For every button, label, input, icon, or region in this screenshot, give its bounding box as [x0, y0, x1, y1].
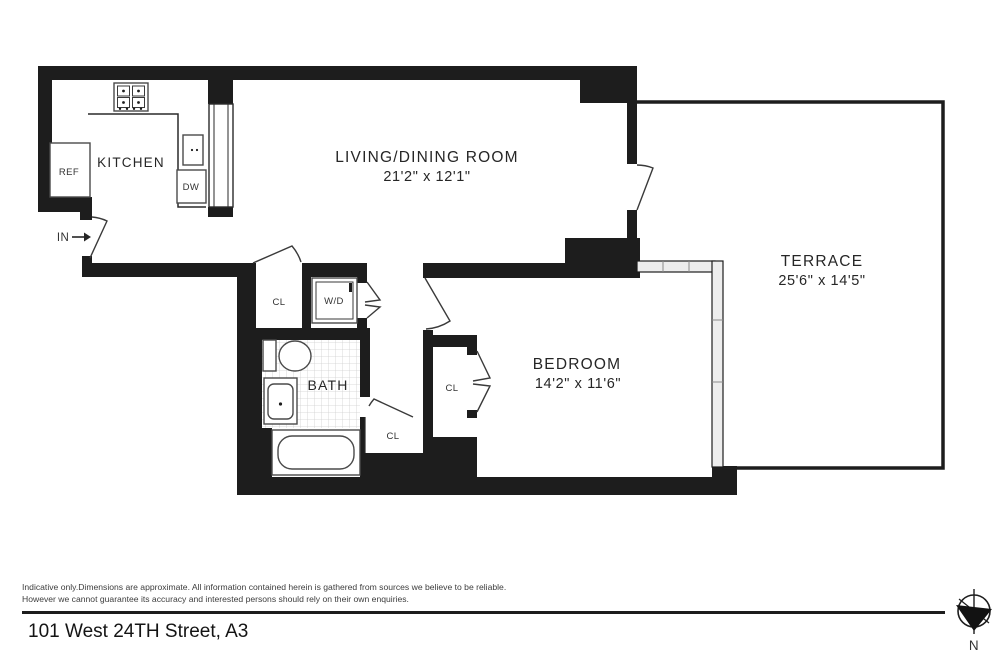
refrigerator-label: REF — [59, 167, 79, 178]
closet-label-bedroom: CL — [446, 383, 459, 394]
compass-north-label: N — [969, 638, 979, 653]
sink-icon — [264, 378, 297, 424]
entry-arrow-icon — [72, 233, 91, 242]
washer-dryer-bifold-door — [365, 282, 380, 318]
disclaimer-line-1: Indicative only.Dimensions are approxima… — [22, 582, 506, 592]
stove-icon — [114, 83, 148, 111]
entry-label: IN — [57, 232, 69, 244]
bath-label: BATH — [307, 377, 348, 393]
dishwasher-label: DW — [183, 182, 200, 193]
window-wall — [637, 261, 723, 467]
bedroom-door-swing — [425, 278, 450, 329]
entry-door-swing — [90, 217, 107, 258]
bath-door-swing — [369, 399, 413, 417]
terrace-dimensions: 25'6" x 14'5" — [778, 273, 865, 289]
washer-dryer-label: W/D — [324, 296, 344, 307]
pantry-cabinet — [209, 104, 233, 207]
living-dining-label: LIVING/DINING ROOM — [335, 149, 519, 166]
closet-label-entry: CL — [273, 297, 286, 308]
address: 101 West 24TH Street, A3 — [28, 621, 248, 642]
floor-plan-drawing: KITCHEN LIVING/DINING ROOM 21'2" x 12'1"… — [0, 0, 1000, 663]
terrace-label: TERRACE — [781, 253, 863, 270]
doors — [90, 165, 653, 453]
terrace-door-swing — [637, 165, 653, 210]
toilet-icon — [263, 340, 311, 371]
cabinet-icon — [183, 135, 203, 165]
closet-door-swing — [253, 246, 301, 263]
kitchen-label: KITCHEN — [97, 155, 165, 170]
bathtub-icon — [272, 430, 360, 475]
bedroom-closet-bifold-door — [473, 351, 490, 412]
divider-line — [22, 611, 945, 614]
bedroom-label: BEDROOM — [533, 356, 622, 373]
kitchen-fixtures — [50, 83, 233, 207]
floor-plan-page: KITCHEN LIVING/DINING ROOM 21'2" x 12'1"… — [0, 0, 1000, 663]
compass-icon — [956, 589, 992, 634]
bedroom-dimensions: 14'2" x 11'6" — [535, 376, 621, 392]
disclaimer-line-2: However we cannot guarantee its accuracy… — [22, 594, 409, 604]
closet-label-hall: CL — [387, 431, 400, 442]
living-dining-dimensions: 21'2" x 12'1" — [383, 169, 470, 185]
bathroom — [262, 340, 360, 475]
